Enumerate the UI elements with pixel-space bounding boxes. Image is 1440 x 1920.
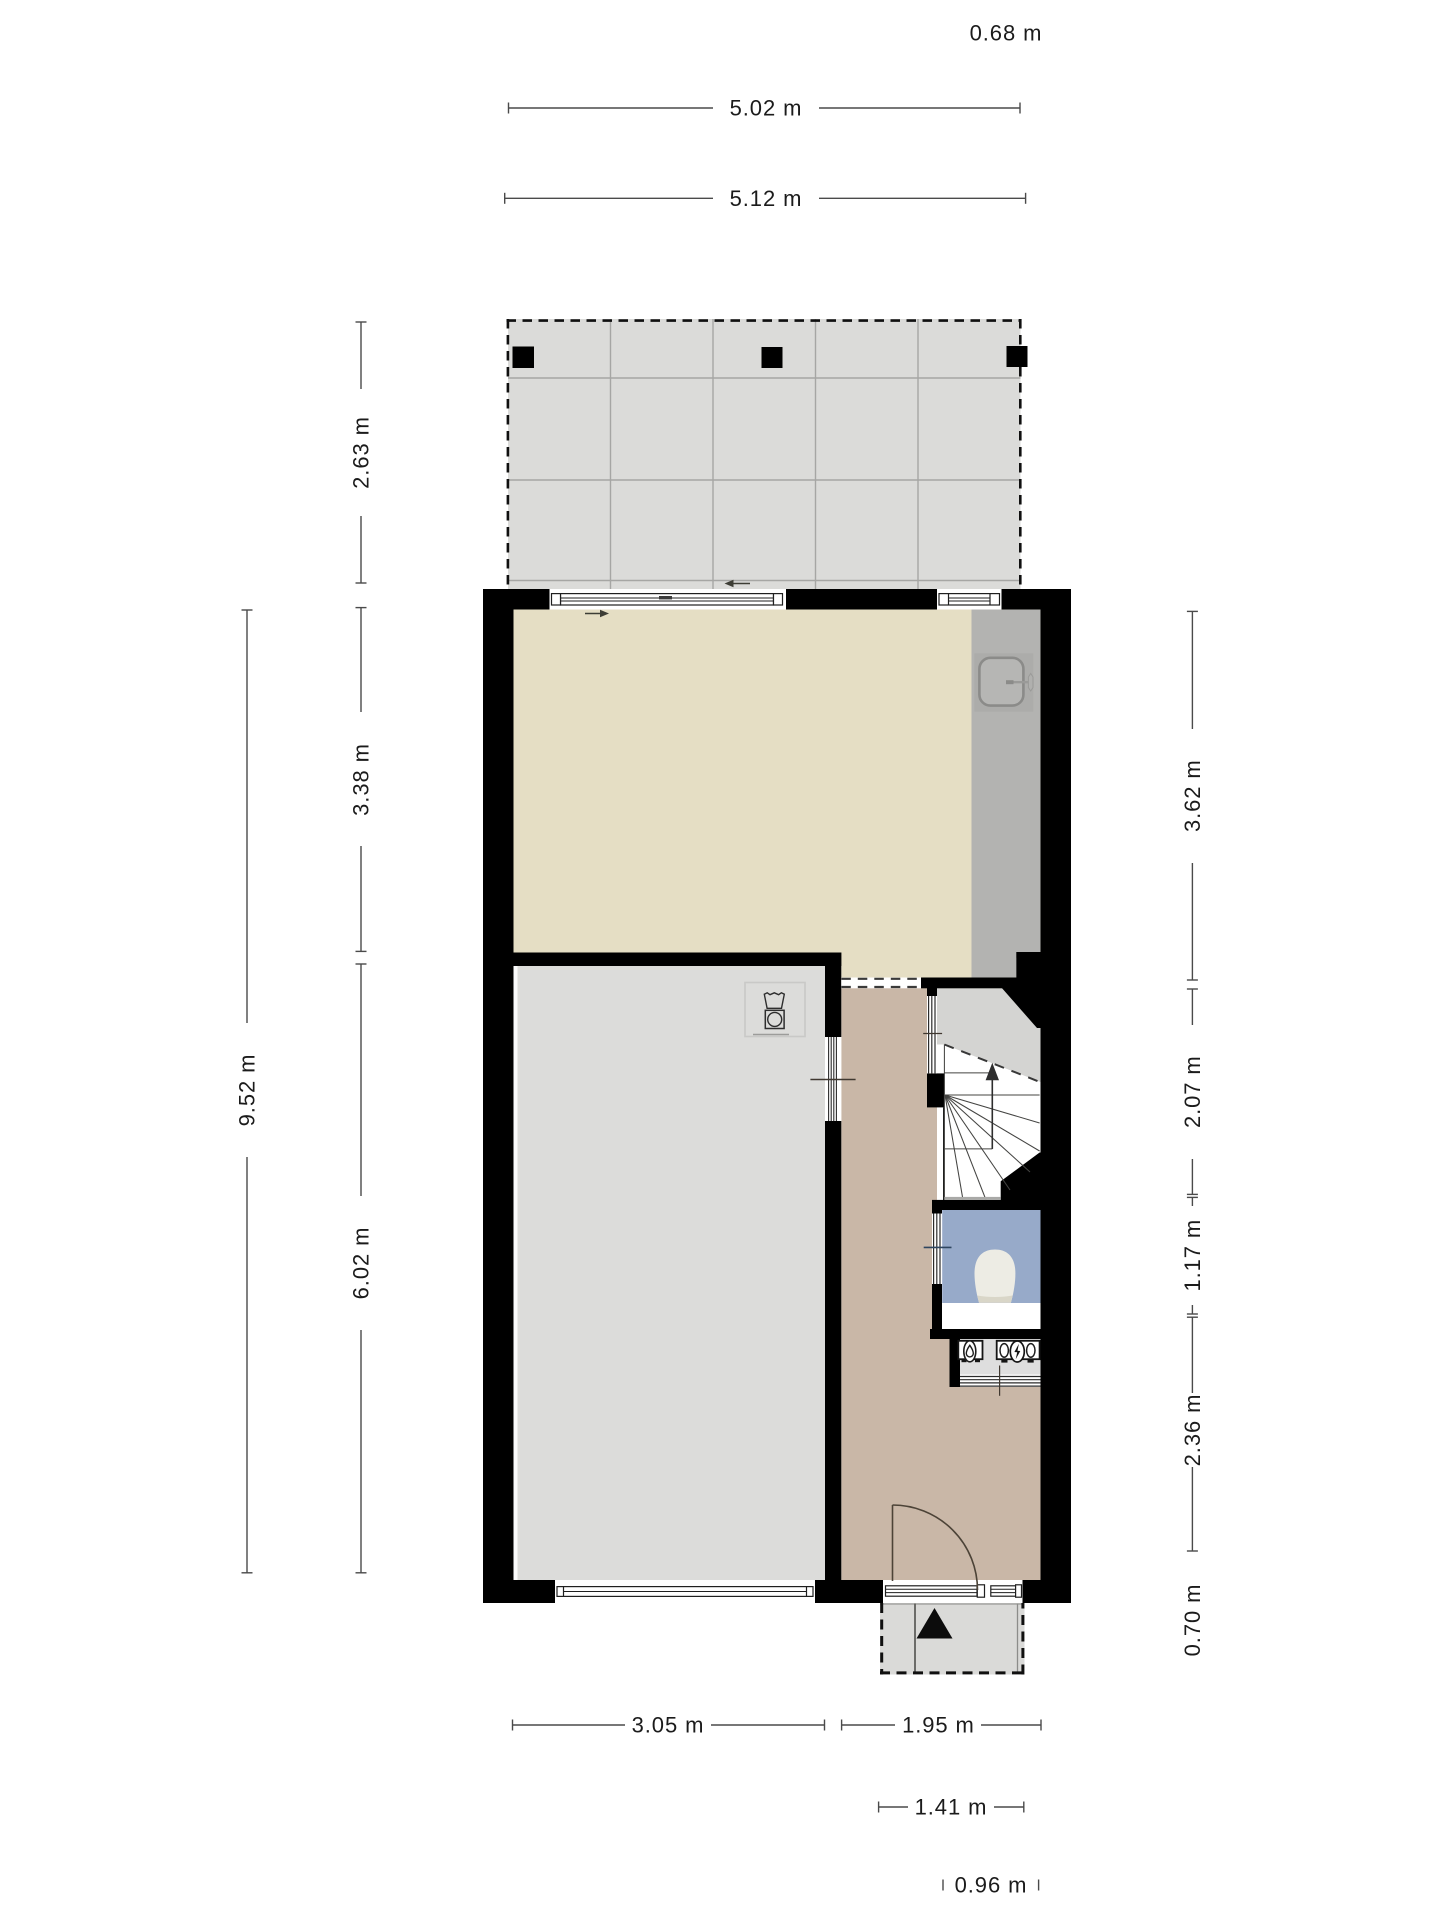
svg-text:3.05 m: 3.05 m (632, 1713, 705, 1738)
svg-text:0.70 m: 0.70 m (1180, 1584, 1205, 1657)
svg-text:6.02 m: 6.02 m (349, 1227, 374, 1300)
svg-text:0.96 m: 0.96 m (955, 1873, 1028, 1898)
svg-text:0.68 m: 0.68 m (970, 21, 1043, 46)
svg-text:1.41 m: 1.41 m (915, 1795, 988, 1820)
svg-text:2.63 m: 2.63 m (349, 416, 374, 489)
svg-text:9.52 m: 9.52 m (235, 1054, 260, 1127)
svg-text:2.07 m: 2.07 m (1180, 1055, 1205, 1128)
svg-text:5.12 m: 5.12 m (730, 186, 803, 211)
svg-text:1.17 m: 1.17 m (1180, 1219, 1205, 1292)
svg-text:5.02 m: 5.02 m (730, 96, 803, 121)
svg-text:3.62 m: 3.62 m (1180, 759, 1205, 832)
svg-text:3.38 m: 3.38 m (349, 743, 374, 816)
svg-text:1.95 m: 1.95 m (902, 1713, 975, 1738)
svg-text:2.36 m: 2.36 m (1180, 1394, 1205, 1467)
